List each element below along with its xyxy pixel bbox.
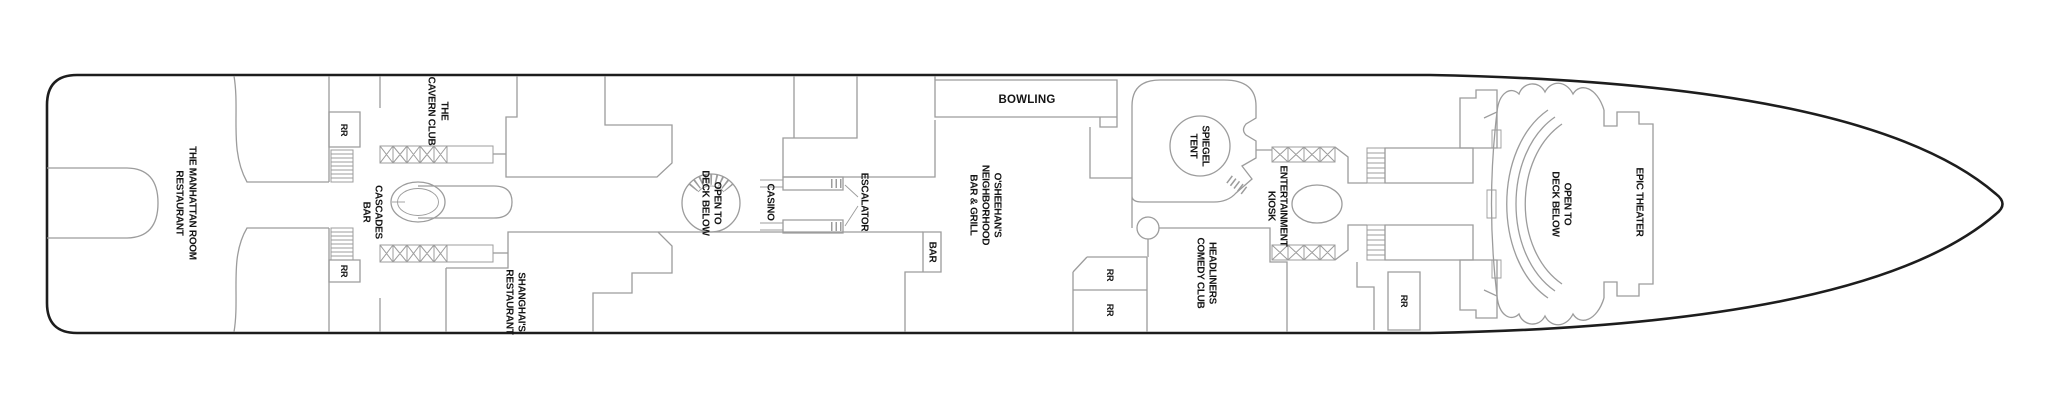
label-manhattan-line2: RESTAURANT — [174, 170, 185, 235]
label-rr-right: RR — [1399, 295, 1409, 308]
label-headliners-line2: COMEDY CLUB — [1195, 238, 1206, 309]
deck-plan-svg: THE MANHATTAN ROOM RESTAURANT RR RR THE … — [0, 0, 2048, 409]
deck-plan-page: THE MANHATTAN ROOM RESTAURANT RR RR THE … — [0, 0, 2048, 409]
label-open-deck-2-line1: OPEN TO — [1562, 183, 1573, 226]
label-cavern-line1: THE — [439, 101, 450, 121]
label-rr-headliners-1: RR — [1105, 269, 1115, 282]
label-bowling: BOWLING — [999, 94, 1056, 106]
label-shanghais-line2: RESTAURANT — [504, 269, 515, 334]
label-shanghais-line1: SHANGHAI'S — [516, 272, 527, 332]
label-cavern-line2: CAVERN CLUB — [426, 77, 437, 146]
label-bar: BAR — [927, 242, 938, 264]
label-osheehans-line2: NEIGHBORHOOD — [980, 165, 991, 245]
label-open-deck-1-line1: OPEN TO — [712, 182, 723, 225]
label-rr-bottom-left: RR — [339, 265, 349, 278]
label-rr-top-left: RR — [339, 124, 349, 137]
label-open-deck-1-line2: DECK BELOW — [700, 170, 711, 236]
label-cascades-line1: CASCADES — [373, 185, 384, 239]
label-spiegel-line2: TENT — [1188, 134, 1199, 159]
ship-hull — [47, 75, 2003, 333]
label-manhattan-line1: THE MANHATTAN ROOM — [187, 146, 198, 260]
label-entertainment-line2: KIOSK — [1266, 191, 1277, 222]
label-osheehans-line1: O'SHEEHAN'S — [992, 173, 1003, 238]
label-casino: CASINO — [765, 183, 776, 221]
label-rr-headliners-2: RR — [1105, 304, 1115, 317]
label-entertainment-line1: ENTERTAINMENT — [1278, 166, 1289, 247]
label-open-deck-2-line2: DECK BELOW — [1550, 171, 1561, 237]
label-osheehans-line3: BAR & GRILL — [968, 174, 979, 235]
label-cascades-line2: BAR — [361, 202, 372, 224]
label-epic-theater: EPIC THEATER — [1634, 168, 1645, 238]
label-headliners-line1: HEADLINERS — [1207, 242, 1218, 305]
label-spiegel-line1: SPIEGEL — [1200, 125, 1211, 166]
label-escalator: ESCALATOR — [859, 173, 870, 233]
